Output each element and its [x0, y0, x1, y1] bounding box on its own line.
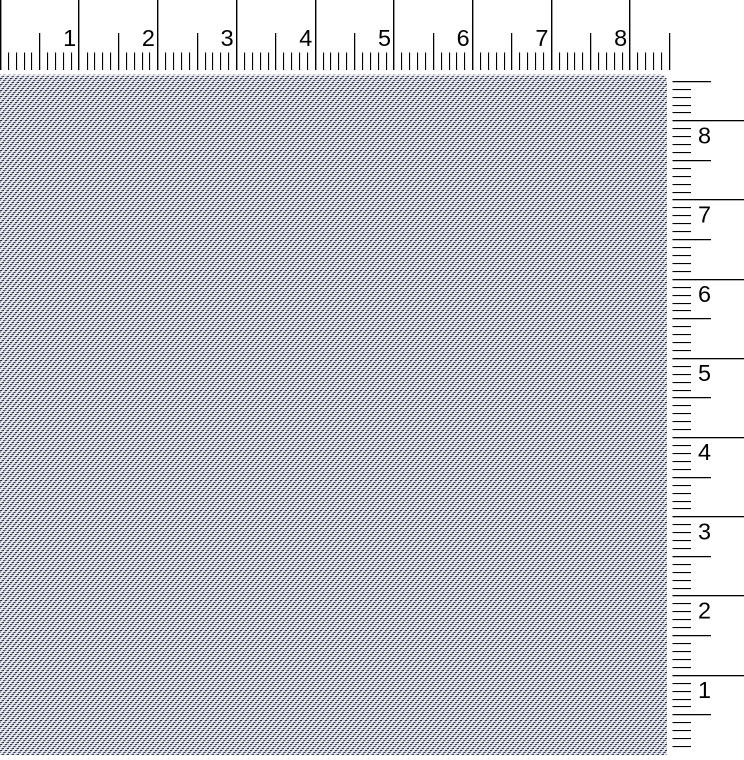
svg-text:8: 8 [614, 25, 627, 51]
svg-text:5: 5 [378, 25, 391, 51]
svg-text:6: 6 [698, 281, 711, 307]
svg-text:7: 7 [698, 202, 711, 228]
svg-text:2: 2 [698, 598, 711, 624]
svg-text:5: 5 [698, 360, 711, 386]
svg-text:3: 3 [698, 518, 711, 544]
svg-text:4: 4 [698, 439, 711, 465]
svg-text:1: 1 [63, 25, 76, 51]
svg-text:2: 2 [142, 25, 155, 51]
svg-text:6: 6 [457, 25, 470, 51]
svg-text:3: 3 [221, 25, 234, 51]
svg-text:4: 4 [299, 25, 312, 51]
svg-text:7: 7 [535, 25, 548, 51]
svg-text:8: 8 [698, 122, 711, 148]
svg-text:1: 1 [698, 677, 711, 703]
